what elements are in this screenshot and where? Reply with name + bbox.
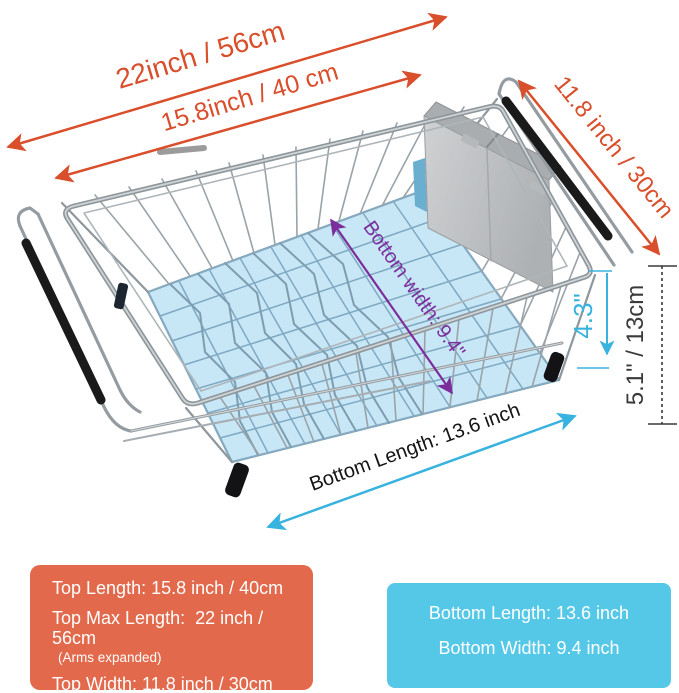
front-left-foot — [224, 461, 251, 498]
overall-height-measure: 5.1" / 13cm — [622, 266, 677, 424]
legend-bottom-length: Bottom Length: 13.6 inch — [387, 603, 671, 624]
top-width-label: 11.8 inch / 30cm — [548, 71, 679, 223]
legend-top-length: Top Length: 15.8 inch / 40cm — [52, 578, 305, 599]
top-dimensions-legend: Top Length: 15.8 inch / 40cm Top Max Len… — [30, 565, 313, 690]
basket-depth-measure: 4.3" — [568, 271, 612, 368]
legend-arms-expanded-note: (Arms expanded) — [58, 650, 305, 665]
legend-top-width: Top Width: 11.8 inch / 30cm — [52, 674, 305, 693]
basket-depth-label: 4.3" — [568, 293, 598, 338]
sink-mount-bar — [160, 148, 204, 152]
product-dimension-diagram: 22inch / 56cm 15.8inch / 40 cm 11.8 inch… — [0, 0, 679, 693]
dish-rack — [18, 79, 632, 499]
bottom-dimensions-legend: Bottom Length: 13.6 inch Bottom Width: 9… — [387, 583, 671, 688]
legend-bottom-width: Bottom Width: 9.4 inch — [387, 638, 671, 659]
overall-height-label: 5.1" / 13cm — [622, 285, 649, 406]
legend-top-max-length: Top Max Length: 22 inch / 56cm — [52, 608, 305, 649]
